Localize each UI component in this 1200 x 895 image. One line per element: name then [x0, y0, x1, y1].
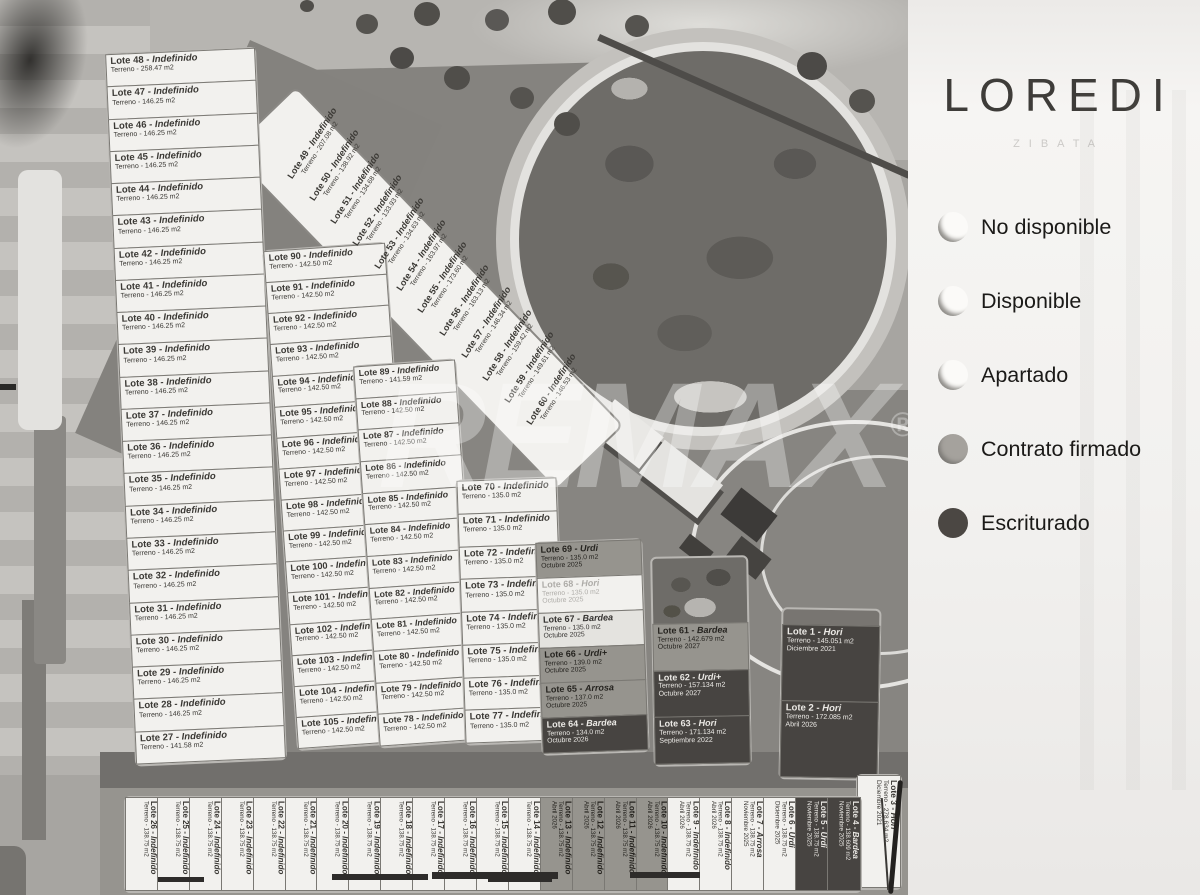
lot-lote-27: Lote 27 - IndefinidoTerreno - 141.58 m2 — [135, 725, 286, 765]
lot-block-64-69: Lote 69 - UrdiTerreno - 135.0 m2Octubre … — [534, 538, 649, 756]
brand-block: LOREDI ZIBATA — [908, 68, 1200, 150]
legend-item-escriturado: Escriturado — [938, 508, 1141, 538]
lot-lote-61: Lote 61 - BardeaTerreno - 142.679 m2Octu… — [652, 622, 749, 671]
lot-lote-21: Lote 21 - IndefinidoTerreno - 138.75 m2 — [285, 797, 319, 891]
legend-dot-light — [938, 286, 968, 316]
lot-map-scan: Lote 48 - IndefinidoTerreno - 258.47 m2L… — [0, 0, 1200, 895]
lot-lote-62: Lote 62 - Urdi+Terreno - 157.134 m2Octub… — [653, 669, 750, 718]
legend-label: Apartado — [981, 363, 1068, 388]
legend-item-no-disponible: No disponible — [938, 212, 1141, 242]
street-mark — [332, 874, 428, 880]
legend-label: Escriturado — [981, 511, 1090, 536]
scan-smudge-bottom-left — [0, 846, 26, 895]
street-mark — [630, 872, 700, 878]
lot-lote-8: Lote 8 - IndefinidoTerreno - 138.75 m2Ab… — [699, 797, 733, 891]
scan-mark-left-edge — [0, 384, 16, 390]
legend-item-disponible: Disponible — [938, 286, 1141, 316]
lot-lote-12: Lote 12 - IndefinidoTerreno - 138.75 m2A… — [572, 797, 606, 891]
lot-lote-68: Lote 68 - HoriTerreno - 135.0 m2Octubre … — [537, 574, 644, 614]
lot-block-27-48: Lote 48 - IndefinidoTerreno - 258.47 m2L… — [104, 47, 287, 767]
brand-subtitle: ZIBATA — [908, 138, 1200, 150]
legend-panel: LOREDI ZIBATA No disponibleDisponibleApa… — [908, 0, 1200, 895]
trees — [300, 0, 314, 12]
legend-item-apartado: Apartado — [938, 360, 1141, 390]
legend-dot-light — [938, 212, 968, 242]
status-legend: No disponibleDisponibleApartadoContrato … — [938, 212, 1141, 538]
lot-lote-6: Lote 6 - UrdiTerreno - 138.75 m2Diciembr… — [763, 797, 797, 891]
street-mark — [488, 878, 552, 882]
lot-lote-4: Lote 4 - BardeaTerreno - 138.609 m2Novie… — [827, 797, 861, 891]
aerial-photo: Lote 48 - IndefinidoTerreno - 258.47 m2L… — [0, 0, 908, 895]
lot-lote-26: Lote 26 - IndefinidoTerreno - 138.75 m2 — [125, 797, 159, 891]
legend-item-contrato-firmado: Contrato firmado — [938, 434, 1141, 464]
vegetation-patch — [652, 557, 747, 625]
lot-lote-63: Lote 63 - HoriTerreno - 171.134 m2Septie… — [654, 715, 751, 764]
lot-lote-66: Lote 66 - Urdi+Terreno - 139.0 m2Octubre… — [539, 644, 646, 684]
lot-lote-64: Lote 64 - BardeaTerreno - 134.0 m2Octubr… — [541, 714, 648, 754]
lot-lote-67: Lote 67 - BardeaTerreno - 135.0 m2Octubr… — [538, 609, 645, 649]
brand-title: LOREDI — [908, 68, 1200, 122]
legend-label: Disponible — [981, 289, 1081, 314]
lot-lote-70: Lote 70 - IndefinidoTerreno - 135.0 m2 — [456, 477, 557, 514]
lot-block-61-63: Lote 61 - BardeaTerreno - 142.679 m2Octu… — [650, 555, 752, 767]
lot-lote-23: Lote 23 - IndefinidoTerreno - 138.75 m2 — [221, 797, 255, 891]
lot-lote-1: Lote 1 - HoriTerreno - 145.051 m2Diciemb… — [781, 624, 880, 703]
legend-label: No disponible — [981, 215, 1111, 240]
street-mark — [158, 877, 204, 882]
legend-dot-mid — [938, 434, 968, 464]
lot-lote-2: Lote 2 - HoriTerreno - 172.085 m2Abril 2… — [780, 700, 879, 779]
lot-lote-5: Lote 5 - UrdiTerreno - 138.75 m2Noviembr… — [795, 797, 829, 891]
lot-lote-7: Lote 7 - ArrosaTerreno - 138.75 m2Noviem… — [731, 797, 765, 891]
legend-dot-light — [938, 360, 968, 390]
legend-label: Contrato firmado — [981, 437, 1141, 462]
lot-lote-22: Lote 22 - IndefinidoTerreno - 138.75 m2 — [253, 797, 287, 891]
legend-dot-dark — [938, 508, 968, 538]
lot-lote-65: Lote 65 - ArrosaTerreno - 137.0 m2Octubr… — [540, 679, 647, 719]
lot-block-1-2: Lote 1 - HoriTerreno - 145.051 m2Diciemb… — [779, 607, 882, 781]
lot-lote-69: Lote 69 - UrdiTerreno - 135.0 m2Octubre … — [535, 539, 642, 579]
